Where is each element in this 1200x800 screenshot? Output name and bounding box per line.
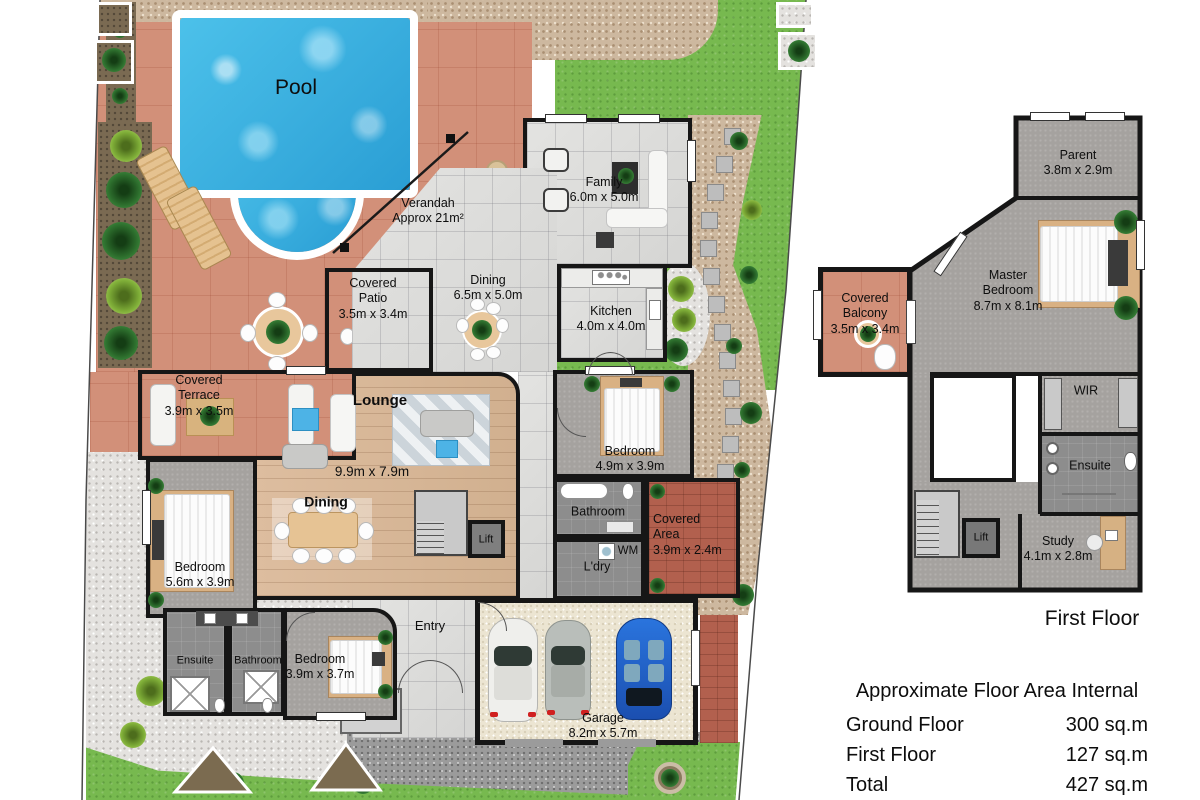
window-mark <box>1085 112 1125 121</box>
stepping-stone <box>719 352 736 369</box>
window-mark <box>687 140 696 182</box>
family-sofa <box>606 208 668 228</box>
balcony-label: Covered Balcony 3.5m x 3.4m <box>829 291 901 337</box>
plant <box>104 326 138 360</box>
dining-chair <box>470 348 485 361</box>
car-white-windshield <box>494 646 532 666</box>
wm-label: WM <box>618 544 638 558</box>
bedroom-bottom-label: Bedroom 3.9m x 3.7m <box>286 652 355 683</box>
plant <box>742 200 762 220</box>
area-row-label: Total <box>846 770 888 800</box>
window-mark <box>618 114 660 123</box>
lift-gf-label: Lift <box>479 533 494 546</box>
dining-chair <box>338 548 356 564</box>
bedroom-bottom-dims: 3.9m x 3.7m <box>286 667 355 682</box>
plant <box>740 266 758 284</box>
car-blue-seat <box>624 664 640 682</box>
basin <box>1046 462 1059 475</box>
area-table-row: Ground Floor 300 sq.m <box>846 710 1148 740</box>
window-mark <box>1030 112 1070 121</box>
plant <box>136 676 166 706</box>
car-grey-windshield <box>551 646 585 665</box>
garage-name: Garage <box>569 711 638 726</box>
staircase-steps-gf <box>417 521 444 554</box>
verandah-dims: Approx 21m² <box>392 211 464 226</box>
plant <box>106 278 142 314</box>
area-table-title: Approximate Floor Area Internal <box>846 676 1148 706</box>
dining-chair <box>496 318 509 333</box>
washing-machine <box>598 543 615 560</box>
covered-patio-label: Covered Patio 3.5m x 3.4m <box>335 276 411 322</box>
entry-label: Entry <box>415 618 445 634</box>
covered-terrace-dims: 3.9m x 3.5m <box>159 404 239 419</box>
stepping-stone <box>716 156 733 173</box>
dining2-label: Dining <box>304 493 348 510</box>
lounge-sofa <box>282 444 328 469</box>
plant <box>378 630 393 645</box>
window-mark <box>286 366 326 375</box>
plant <box>668 276 694 302</box>
shower <box>243 670 279 704</box>
parent-name: Parent <box>1044 148 1113 163</box>
garage-door-gap <box>505 739 563 747</box>
parent-label: Parent 3.8m x 2.9m <box>1044 148 1113 179</box>
stepping-stone <box>707 184 724 201</box>
plant <box>650 578 665 593</box>
bedroom-right-label: Bedroom 4.9m x 3.9m <box>596 444 665 475</box>
garage-dims: 8.2m x 5.7m <box>569 726 638 741</box>
plant <box>734 462 750 478</box>
covered-area-label: Covered Area 3.9m x 2.4m <box>653 512 725 558</box>
laptop <box>1105 530 1118 541</box>
ff-balcony-chair <box>874 344 896 370</box>
area-table-row: First Floor 127 sq.m <box>846 740 1148 770</box>
balcony-name: Covered Balcony <box>829 291 901 322</box>
garage-label: Garage 8.2m x 5.7m <box>569 711 638 742</box>
window-mark <box>316 712 366 721</box>
wardrobe <box>1118 378 1138 428</box>
plant <box>584 376 600 392</box>
plant <box>650 484 665 499</box>
toilet <box>1124 452 1137 471</box>
floor-area-table: Approximate Floor Area Internal Ground F… <box>846 676 1148 800</box>
ff-staircase-steps <box>917 500 939 555</box>
stepping-stone <box>703 268 720 285</box>
dining-dims: 6.5m x 5.0m <box>454 288 523 303</box>
bathtub <box>559 482 609 500</box>
pool-deck-lower <box>90 372 140 460</box>
study-dims: 4.1m x 2.8m <box>1024 549 1093 564</box>
dining-chair <box>292 548 310 564</box>
dining-chair <box>456 318 469 333</box>
ensuite-gf-label: Ensuite <box>177 654 214 667</box>
plant <box>672 308 696 332</box>
plant <box>106 172 142 208</box>
area-row-value: 300 sq.m <box>1066 710 1148 740</box>
plant <box>726 338 742 354</box>
plant <box>378 684 393 699</box>
bedroom-right-name: Bedroom <box>596 444 665 459</box>
bed-pillow <box>620 378 642 387</box>
window-mark <box>1136 220 1145 270</box>
plant <box>102 222 140 260</box>
desk <box>1100 516 1126 570</box>
lounge-dims: 9.9m x 7.9m <box>335 464 409 480</box>
study-label: Study 4.1m x 2.8m <box>1024 534 1093 565</box>
car-grey-roof <box>551 665 585 697</box>
family-ottoman <box>596 232 614 248</box>
bathroom-mid-label: Bathroom <box>571 504 625 519</box>
first-floor-caption: First Floor <box>1045 606 1140 632</box>
bedroom-left-dims: 5.6m x 3.9m <box>166 575 235 590</box>
car-blue-seat <box>624 640 640 660</box>
toilet <box>214 698 225 713</box>
dining-chair <box>486 302 501 315</box>
car-taillight <box>490 712 498 717</box>
ff-balcony-door-gap <box>906 300 916 344</box>
stepping-stone <box>708 296 725 313</box>
bed-headboard <box>152 520 164 560</box>
plant <box>148 592 164 608</box>
kitchen-dims: 4.0m x 4.0m <box>577 319 646 334</box>
outdoor-chair <box>302 324 318 342</box>
family-name: Family <box>570 175 639 190</box>
dining-chair <box>358 522 374 540</box>
stepping-stone <box>700 240 717 257</box>
study-name: Study <box>1024 534 1093 549</box>
lounge-label: Lounge <box>353 392 407 410</box>
toilet <box>262 698 273 713</box>
brick-side-path <box>700 598 738 743</box>
plant <box>661 769 679 787</box>
pool-label: Pool <box>275 75 317 101</box>
family-armchair <box>543 188 569 212</box>
outdoor-chair <box>240 324 256 342</box>
wir-label: WIR <box>1074 383 1098 398</box>
kitchen-name: Kitchen <box>577 304 646 319</box>
ff-master-duvet <box>1040 226 1118 302</box>
lounge-sofa <box>420 410 474 437</box>
hallway <box>518 372 556 600</box>
laundry-label: L'dry <box>584 559 611 574</box>
fridge <box>649 300 661 320</box>
bedroom-left-name: Bedroom <box>166 560 235 575</box>
family-label: Family 6.0m x 5.0m <box>570 175 639 206</box>
window-mark <box>142 490 151 545</box>
covered-area-name: Covered Area <box>653 512 725 543</box>
plant <box>110 130 142 162</box>
plant <box>222 772 244 794</box>
cooktop <box>592 270 630 285</box>
family-armchair <box>543 148 569 172</box>
ff-lift-label: Lift <box>974 531 989 544</box>
dining-chair <box>315 548 333 564</box>
plant <box>664 376 680 392</box>
kitchen-label: Kitchen 4.0m x 4.0m <box>577 304 646 335</box>
car-blue-seat <box>648 640 664 660</box>
bed-duvet <box>604 388 660 452</box>
ff-void <box>930 374 1016 482</box>
car-blue-boot <box>626 688 662 706</box>
dining-table <box>288 512 358 548</box>
plant <box>730 132 748 150</box>
plant <box>788 40 810 62</box>
stepping-stone <box>701 212 718 229</box>
plant <box>198 760 224 786</box>
plant <box>112 88 128 104</box>
family-dims: 6.0m x 5.0m <box>570 190 639 205</box>
coffee-table <box>292 408 319 431</box>
bathroom-small-label: Bathroom <box>234 654 282 667</box>
dining-main-label: Dining 6.5m x 5.0m <box>454 273 523 304</box>
dining-name: Dining <box>454 273 523 288</box>
balcony-dims: 3.5m x 3.4m <box>829 322 901 337</box>
planter-box <box>96 2 132 36</box>
window-mark <box>813 290 822 340</box>
parent-dims: 3.8m x 2.9m <box>1044 163 1113 178</box>
area-row-value: 427 sq.m <box>1066 770 1148 800</box>
covered-patio-dims: 3.5m x 3.4m <box>335 307 411 322</box>
plant <box>120 722 146 748</box>
basin <box>1046 442 1059 455</box>
basin <box>236 613 248 624</box>
bedroom-bottom-name: Bedroom <box>286 652 355 667</box>
area-row-value: 127 sq.m <box>1066 740 1148 770</box>
covered-area-dims: 3.9m x 2.4m <box>653 543 725 558</box>
bedroom-left-label: Bedroom 5.6m x 3.9m <box>166 560 235 591</box>
verandah-label: Verandah Approx 21m² <box>392 196 464 227</box>
dining-chair <box>274 522 290 540</box>
plant <box>102 48 126 72</box>
plant <box>1114 296 1138 320</box>
planter-box <box>776 2 814 28</box>
plant <box>664 338 688 362</box>
covered-terrace-label: Covered Terrace 3.9m x 3.5m <box>159 373 239 419</box>
floor-plan-page: Pool <box>0 0 1200 800</box>
wardrobe <box>1044 378 1062 430</box>
ff-ensuite-label: Ensuite <box>1069 458 1111 473</box>
garage-side-door-gap <box>691 630 700 686</box>
area-table-row: Total 427 sq.m <box>846 770 1148 800</box>
car-white-roof <box>494 666 532 700</box>
area-row-label: First Floor <box>846 740 936 770</box>
plant <box>472 320 492 340</box>
bedroom-right-dims: 4.9m x 3.9m <box>596 459 665 474</box>
plant <box>740 402 762 424</box>
car-taillight <box>528 712 536 717</box>
master-name: Master Bedroom <box>972 268 1044 299</box>
shower <box>170 676 210 712</box>
dining-chair <box>486 346 501 359</box>
plant <box>266 320 290 344</box>
toilet <box>622 483 634 500</box>
covered-terrace-name: Covered Terrace <box>159 373 239 404</box>
master-dims: 8.7m x 8.1m <box>972 299 1044 314</box>
plant <box>332 752 358 778</box>
basin <box>204 613 216 624</box>
bed-headboard <box>372 652 385 666</box>
pool <box>172 10 418 198</box>
outdoor-chair <box>268 292 286 308</box>
stepping-stone <box>722 436 739 453</box>
verandah-name: Verandah <box>392 196 464 211</box>
car-taillight <box>547 710 555 715</box>
ff-master-headboard <box>1108 240 1128 286</box>
coffee-table <box>436 440 458 458</box>
covered-patio-name: Covered Patio <box>335 276 411 307</box>
stepping-stone <box>723 380 740 397</box>
plant <box>1114 210 1138 234</box>
plant <box>352 772 374 794</box>
area-row-label: Ground Floor <box>846 710 964 740</box>
vanity <box>606 521 634 533</box>
master-label: Master Bedroom 8.7m x 8.1m <box>972 268 1044 314</box>
window-mark <box>545 114 587 123</box>
car-blue-seat <box>648 664 664 682</box>
